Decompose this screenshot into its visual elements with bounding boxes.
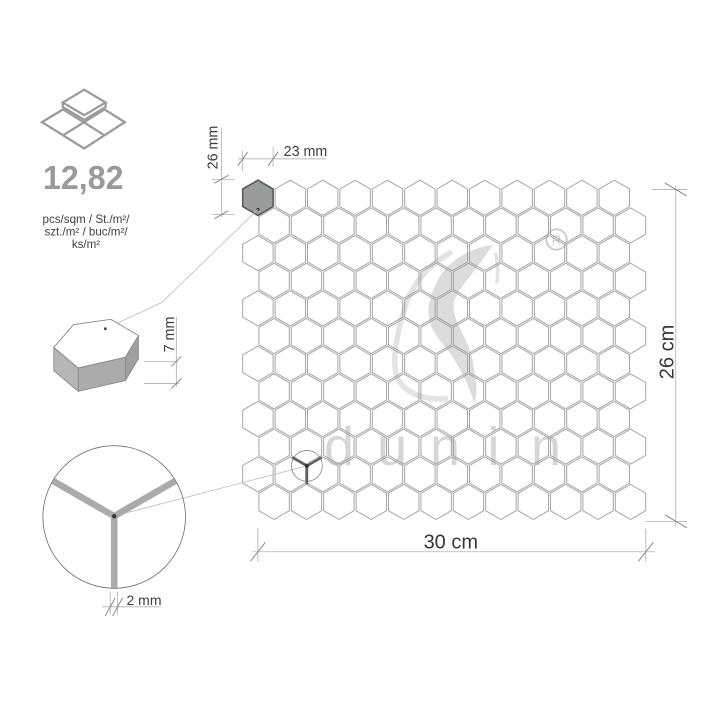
- svg-text:szt./m² / buc/m²/: szt./m² / buc/m²/: [44, 226, 128, 239]
- svg-text:26 cm: 26 cm: [656, 325, 678, 379]
- svg-text:i: i: [488, 417, 500, 477]
- svg-text:ks/m²: ks/m²: [72, 238, 100, 251]
- svg-text:pcs/sqm / St./m²/: pcs/sqm / St./m²/: [43, 213, 131, 226]
- svg-text:2 mm: 2 mm: [127, 592, 162, 608]
- svg-text:n: n: [430, 417, 460, 477]
- svg-text:23 mm: 23 mm: [284, 144, 328, 160]
- svg-text:12,82: 12,82: [43, 159, 124, 196]
- svg-text:7 mm: 7 mm: [162, 317, 178, 353]
- svg-text:26 mm: 26 mm: [206, 126, 222, 170]
- svg-text:n: n: [531, 417, 561, 477]
- svg-text:30 cm: 30 cm: [424, 532, 478, 554]
- svg-text:d: d: [324, 417, 354, 477]
